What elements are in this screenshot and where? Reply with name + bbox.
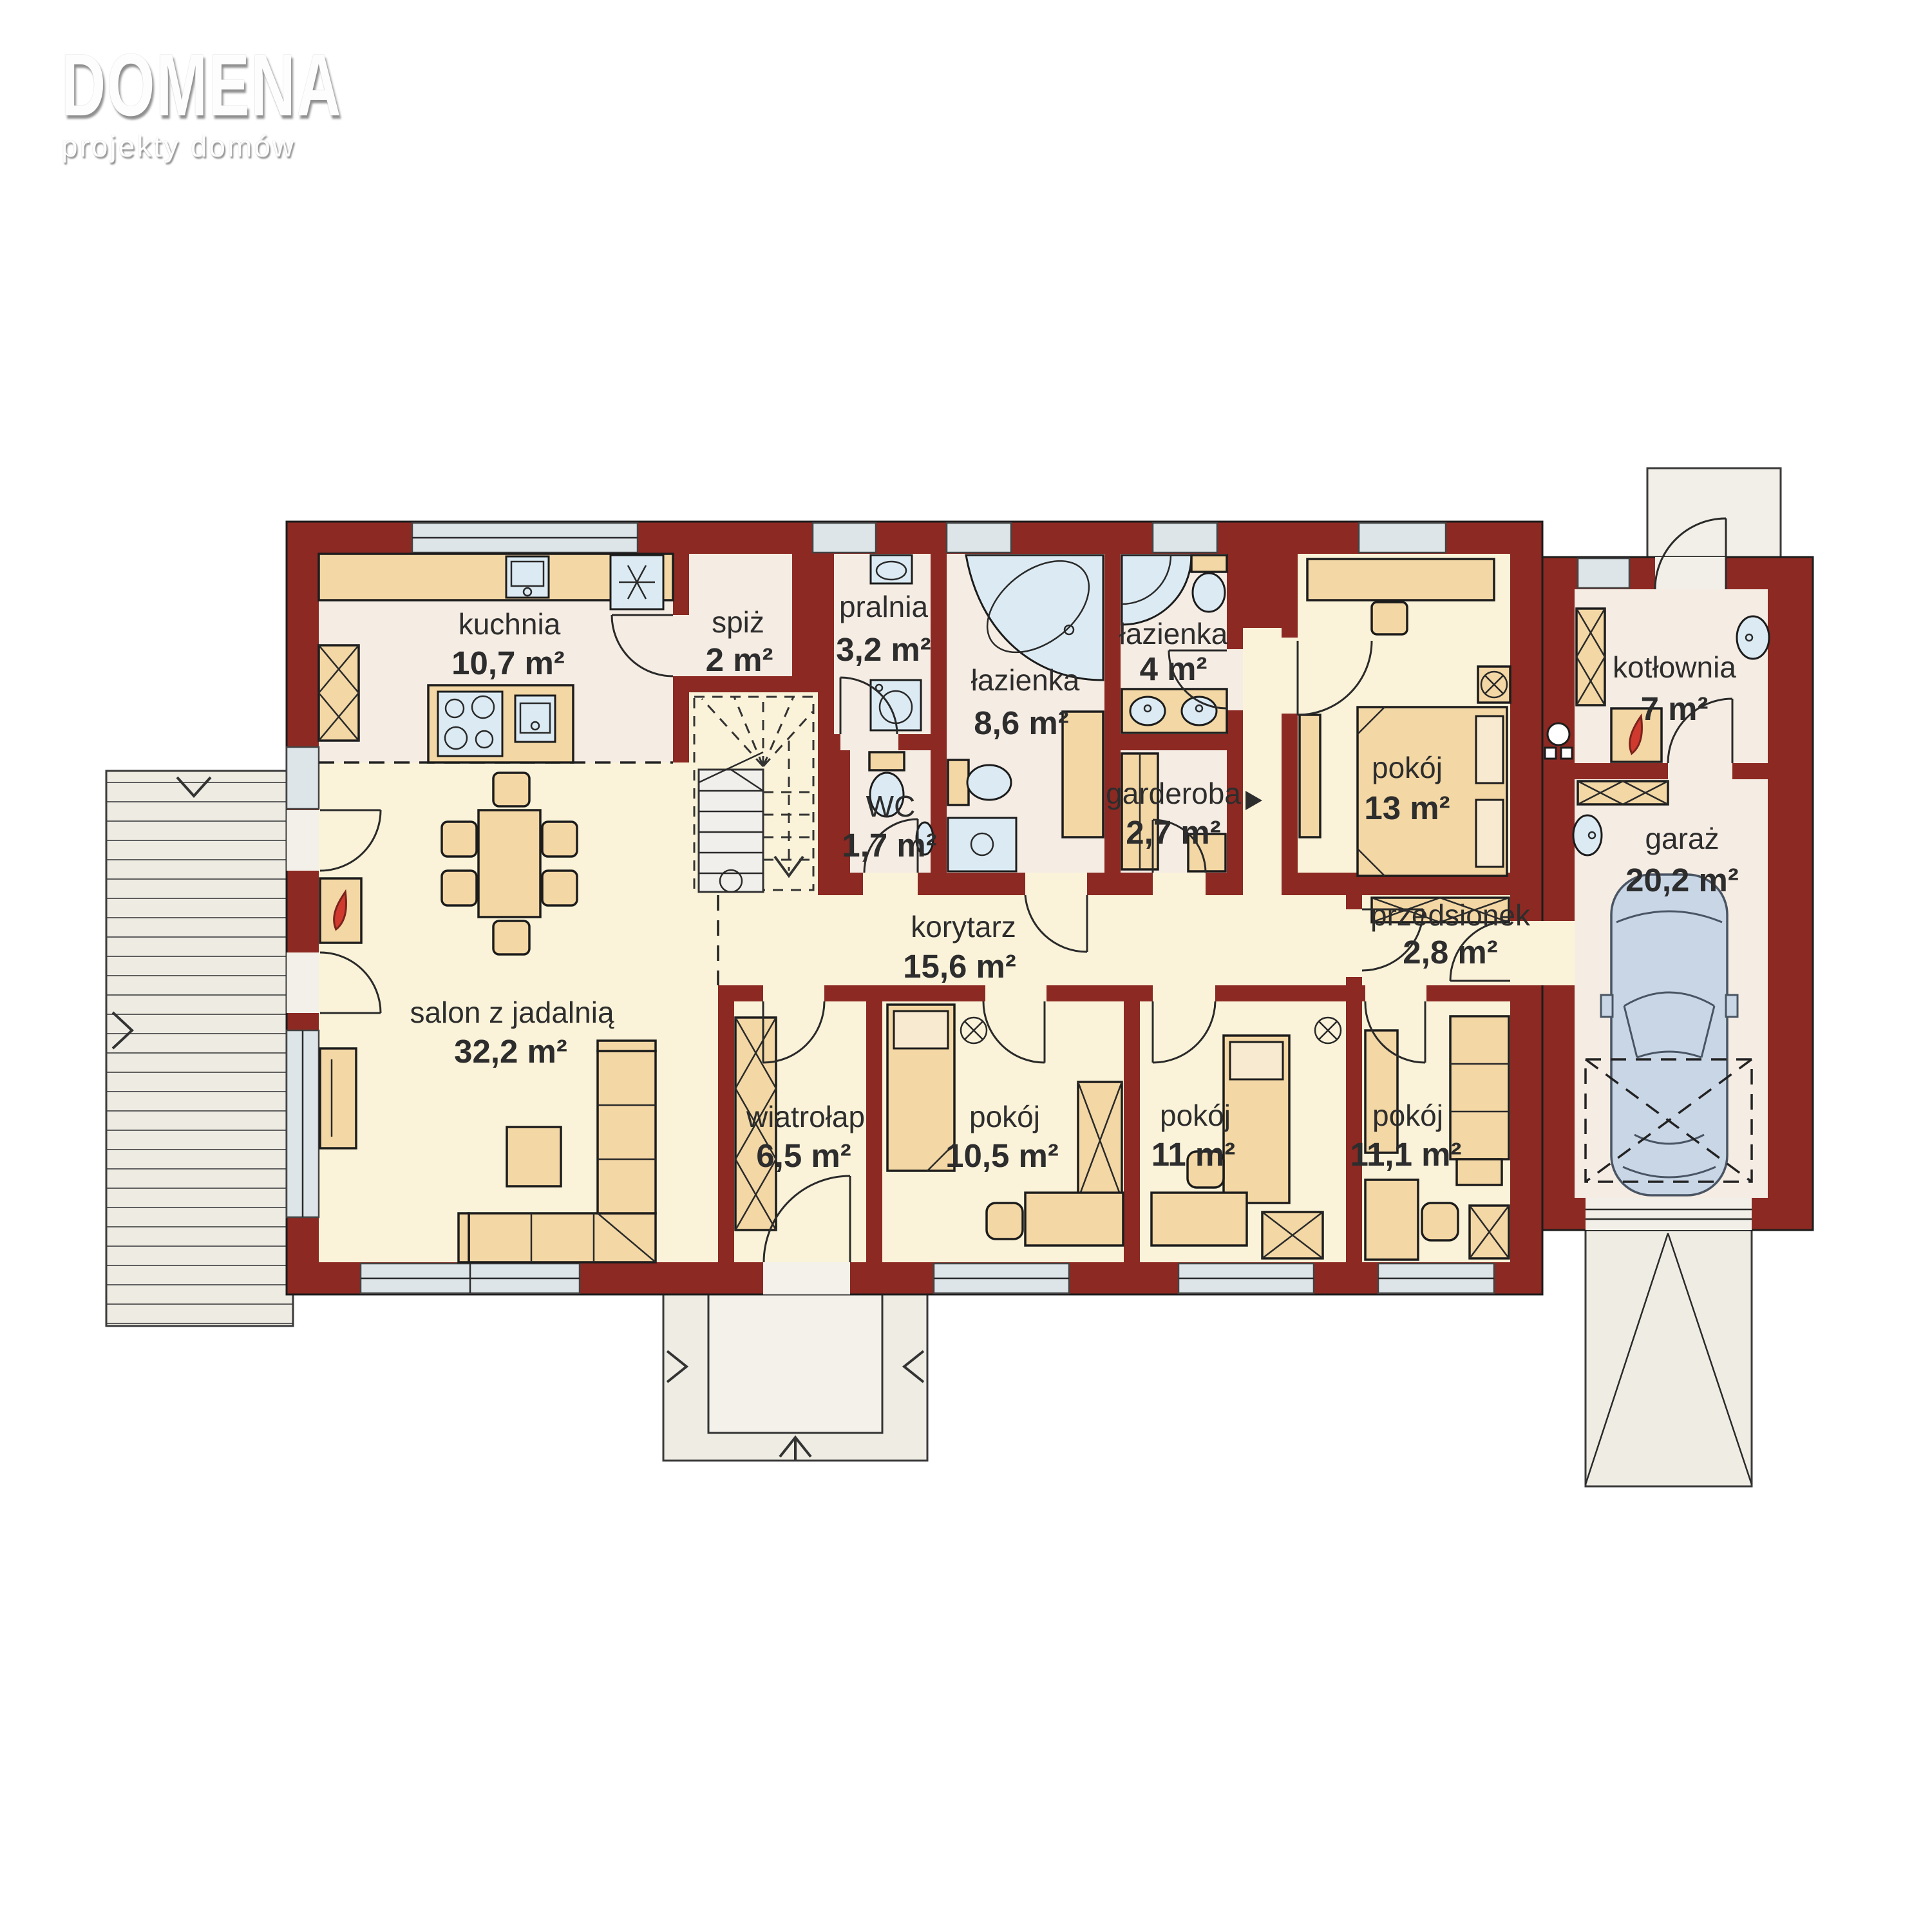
desk-chair (1422, 1203, 1458, 1240)
label-pokoj-13: pokój (1372, 751, 1443, 784)
label-garaz: garaż (1645, 822, 1719, 855)
bookshelf (1365, 1030, 1397, 1153)
coffee-table (507, 1127, 561, 1186)
driveway (1586, 1230, 1752, 1486)
area-kotlownia: 7 m² (1641, 690, 1709, 727)
entrance-porch (663, 1272, 927, 1461)
garage-basin (1573, 815, 1602, 855)
area-pokoj-105: 10,5 m² (945, 1137, 1059, 1174)
area-lazienka-mala: 4 m² (1140, 650, 1207, 687)
bath-cistern (948, 760, 969, 805)
area-przedsionek: 2,8 m² (1403, 934, 1497, 971)
car (1601, 875, 1738, 1195)
area-korytarz: 15,6 m² (903, 948, 1016, 985)
area-wc: 1,7 m² (842, 827, 936, 864)
kitchen-sink (506, 556, 549, 598)
area-pokoj-11: 11 m² (1151, 1136, 1235, 1173)
area-garaz: 20,2 m² (1625, 862, 1739, 898)
bath-toilet (967, 765, 1011, 800)
label-spiz: spiż (712, 605, 764, 639)
area-kuchnia: 10,7 m² (451, 645, 565, 681)
wc-cistern (869, 752, 904, 770)
toilet-cistern (1191, 555, 1227, 572)
label-pokoj-105: pokój (969, 1100, 1040, 1133)
area-spiz: 2 m² (706, 641, 773, 678)
label-wc: WC (866, 790, 916, 823)
floor-plan: kuchnia 10,7 m² spiż 2 m² pralnia 3,2 m²… (0, 0, 1932, 1932)
label-salon: salon z jadalnią (410, 996, 614, 1029)
label-przedsionek: przedsionek (1370, 898, 1531, 932)
tv-bench (320, 1048, 356, 1148)
label-garderoba: garderoba (1106, 777, 1241, 810)
label-kuchnia: kuchnia (459, 607, 561, 641)
area-pralnia: 3,2 m² (836, 631, 931, 668)
toilet (1193, 573, 1225, 612)
corner-sofa-side (598, 1051, 656, 1213)
dining-table (478, 810, 540, 917)
label-pokoj-11: pokój (1160, 1099, 1231, 1132)
label-lazienka-duza: łazienka (971, 663, 1080, 697)
area-pokoj-13: 13 m² (1364, 790, 1450, 826)
garage-stoop (1647, 468, 1781, 558)
desk (1365, 1180, 1418, 1260)
desk-chair (987, 1203, 1023, 1239)
kitchen-tall-cabinet (319, 645, 359, 741)
area-salon: 32,2 m² (454, 1033, 567, 1070)
desk (1151, 1193, 1247, 1245)
label-pralnia: pralnia (839, 590, 929, 623)
desk (1025, 1193, 1123, 1245)
area-garderoba: 2,7 m² (1126, 814, 1220, 851)
shower (948, 818, 1016, 871)
wardrobe (1300, 715, 1320, 837)
area-pokoj-111: 11,1 m² (1350, 1136, 1462, 1173)
label-korytarz: korytarz (911, 910, 1016, 943)
label-pokoj-111: pokój (1372, 1099, 1443, 1132)
area-wiatrolap: 6,5 m² (756, 1137, 851, 1174)
chair (1372, 602, 1407, 634)
label-lazienka-mala: łazienka (1119, 617, 1228, 650)
garage-closet (1578, 781, 1668, 804)
label-kotlownia: kotłownia (1613, 650, 1736, 684)
label-wiatrolap: wiatrołap (746, 1100, 865, 1133)
utility-wardrobe (1577, 609, 1605, 705)
area-lazienka-duza: 8,6 m² (974, 705, 1068, 741)
dresser (1307, 559, 1494, 600)
terrace (106, 771, 293, 1326)
